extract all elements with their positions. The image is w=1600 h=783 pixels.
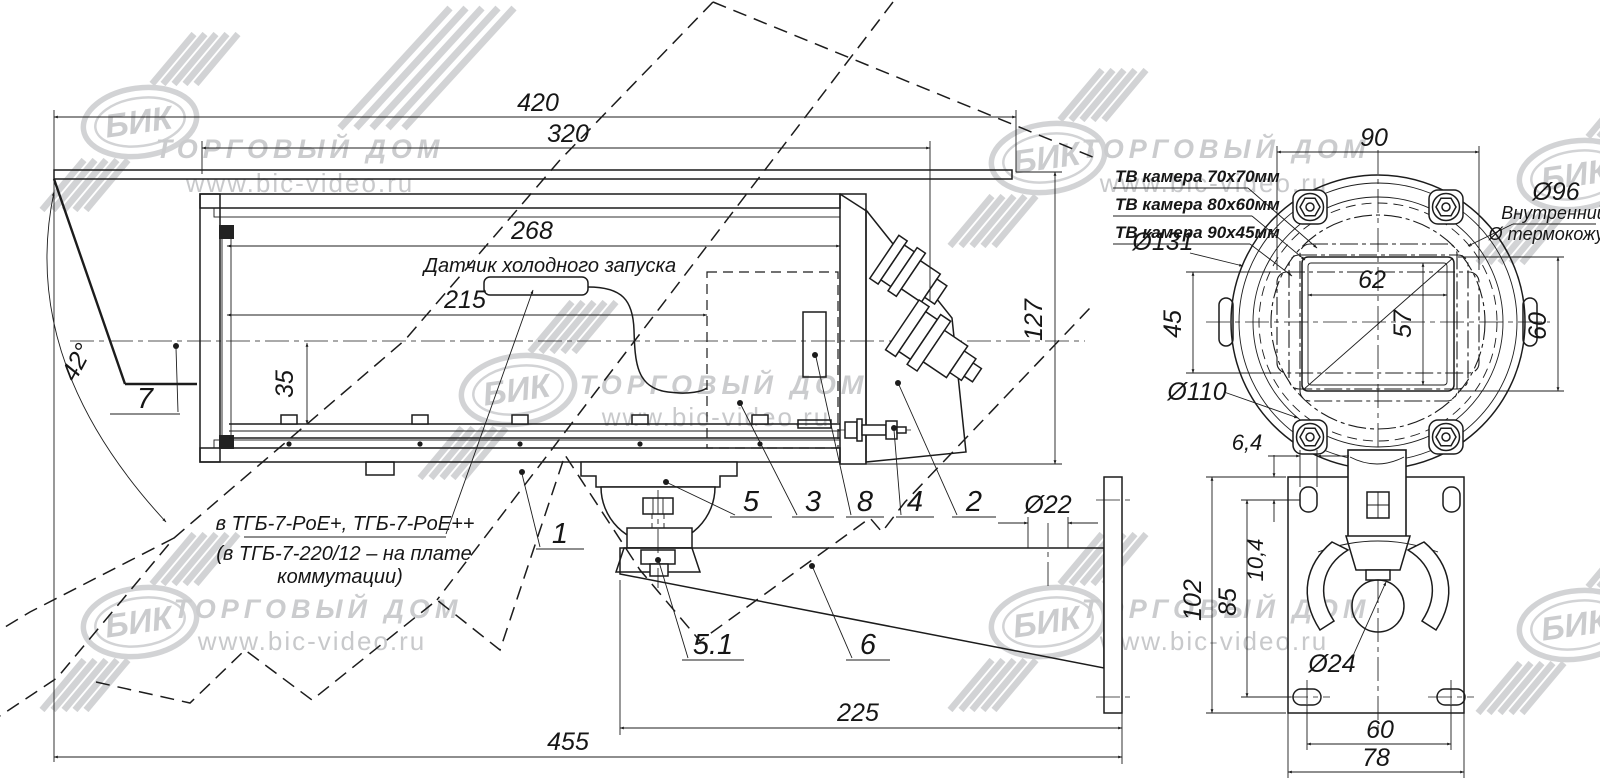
bezel-bolt xyxy=(1293,190,1327,224)
camera-option-2: ТВ камера 80х60мм xyxy=(1115,195,1280,214)
cable-gland-lower xyxy=(886,300,994,400)
glass-retainer-bottom xyxy=(219,435,234,449)
callout-8: 8 xyxy=(857,486,873,518)
dim-102: 102 xyxy=(1179,579,1207,621)
dim-35: 35 xyxy=(271,370,299,398)
dim-62: 62 xyxy=(1358,266,1386,294)
dim-45: 45 xyxy=(1159,310,1187,338)
dim-6-4: 6,4 xyxy=(1232,430,1263,455)
dim-225: 225 xyxy=(836,699,879,727)
plate-slot-topright xyxy=(1443,487,1460,512)
bezel-bolt xyxy=(1293,420,1327,454)
callout-3: 3 xyxy=(805,486,821,518)
bottom-step xyxy=(366,462,394,475)
glass-retainer-top xyxy=(219,225,234,239)
cold-start-sensor xyxy=(484,277,588,295)
dim-127: 127 xyxy=(1020,298,1048,341)
watermark-site: www.bic-video.ru xyxy=(1099,626,1329,656)
bracket-column xyxy=(627,528,692,548)
bezel-bolt xyxy=(1429,420,1463,454)
svg-text:в ТГБ-7-PoE+, ТГБ-7-PoE++: в ТГБ-7-PoE+, ТГБ-7-PoE++ xyxy=(216,513,475,535)
variant-note: в ТГБ-7-PoE+, ТГБ-7-PoE++ (в ТГБ-7-220/1… xyxy=(216,513,475,588)
inner-note-2: Ø термокожуха xyxy=(1488,224,1600,244)
dim-85: 85 xyxy=(1214,588,1242,616)
dim-78: 78 xyxy=(1362,744,1390,772)
callout-2: 2 xyxy=(965,486,982,518)
callout-7: 7 xyxy=(137,383,155,415)
dim-90: 90 xyxy=(1360,124,1388,152)
dim-o110: Ø110 xyxy=(1166,378,1226,406)
watermark-wings-topleft xyxy=(340,8,514,128)
front-bezel xyxy=(200,194,220,462)
cable-gland-upper xyxy=(870,235,955,316)
dim-420: 420 xyxy=(517,89,559,117)
watermark-site: www.bic-video.ru xyxy=(197,626,427,656)
dim-o96: Ø96 xyxy=(1531,178,1579,206)
svg-text:коммутации): коммутации) xyxy=(277,566,403,588)
inner-note-1: Внутренний xyxy=(1501,203,1600,223)
technical-drawing-tgb7-camera-housing: БИК БИК БИК БИК БИК БИК БИК ТОРГОВЫЙ ДОМ… xyxy=(0,0,1600,783)
dim-268: 268 xyxy=(510,217,553,245)
watermark-company: ТОРГОВЫЙ ДОМ xyxy=(1082,132,1371,164)
dim-visor-angle: 42° xyxy=(56,339,98,386)
watermark-company: ТОРГОВЫЙ ДОМ xyxy=(174,592,463,624)
bezel-bolt xyxy=(1429,190,1463,224)
sensor-label: Датчик холодного запуска xyxy=(422,255,676,277)
sensor-leader xyxy=(446,290,533,534)
callout-1: 1 xyxy=(552,518,568,550)
dim-60-holes: 60 xyxy=(1366,716,1394,744)
dim-455: 455 xyxy=(547,728,589,756)
wall-flange-side xyxy=(1104,477,1122,713)
connector-block xyxy=(803,312,826,377)
callout-5: 5 xyxy=(743,486,760,518)
dim-o131: Ø131 xyxy=(1131,228,1193,256)
watermarks: БИК БИК БИК БИК БИК БИК БИК ТОРГОВЫЙ ДОМ… xyxy=(42,8,1600,713)
callout-5-1: 5.1 xyxy=(693,629,733,661)
dim-57: 57 xyxy=(1389,309,1417,338)
dim-60-window: 60 xyxy=(1524,312,1552,340)
dim-o22: Ø22 xyxy=(1023,491,1071,519)
dim-o24: Ø24 xyxy=(1307,650,1355,678)
watermark-company: ТОРГОВЫЙ ДОМ xyxy=(580,368,869,400)
front-window: 62 57 xyxy=(1302,257,1454,391)
front-glass xyxy=(222,230,231,444)
callout-6: 6 xyxy=(860,629,877,661)
clamp-plate xyxy=(581,462,737,487)
plate-slot-topleft xyxy=(1300,487,1317,512)
camera-option-1: ТВ камера 70х70мм xyxy=(1115,167,1280,186)
svg-text:(в ТГБ-7-220/12 – на плате: (в ТГБ-7-220/12 – на плате xyxy=(216,543,472,565)
dim-320: 320 xyxy=(547,120,589,148)
dim-215: 215 xyxy=(443,286,486,314)
fork-prong-right xyxy=(1408,542,1449,630)
ground-bolt xyxy=(838,419,912,441)
